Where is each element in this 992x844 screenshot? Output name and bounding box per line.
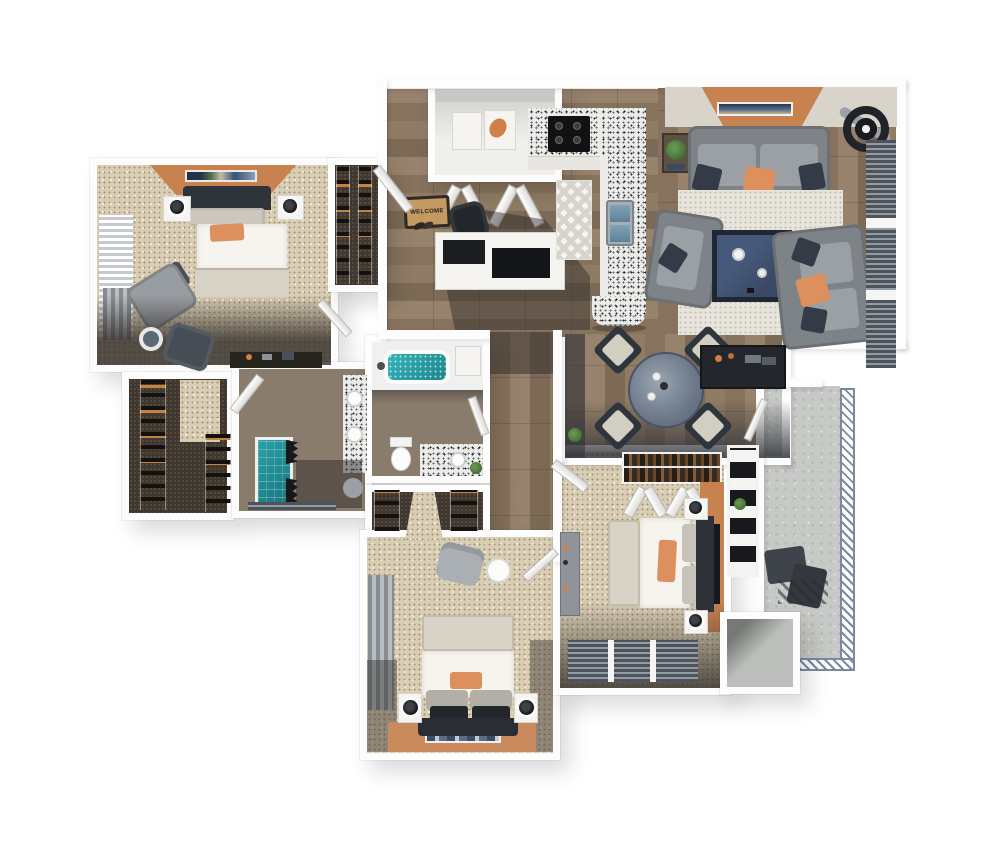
office-desk-surface-left xyxy=(443,240,485,264)
dining-table-cup-2 xyxy=(647,392,656,401)
living-window-divider-2 xyxy=(866,290,896,300)
dining-plant xyxy=(568,428,582,442)
console-item-books-2 xyxy=(762,357,776,365)
stove-burner-3 xyxy=(555,136,563,144)
bedroom1-desk-item-gray xyxy=(262,354,272,360)
sofa-top-pillow-dark-2 xyxy=(798,162,826,192)
bedroom3-lamp-right xyxy=(519,700,534,715)
sofa-right-pillow-dark-2 xyxy=(800,306,828,334)
laundry-back-wall xyxy=(436,90,554,102)
bedroom1-lamp-left xyxy=(170,200,184,214)
dining-table-centerpiece xyxy=(660,382,668,390)
bedroom2-dresser xyxy=(560,532,580,616)
bathroom1-window xyxy=(248,502,336,510)
living-window-divider-1 xyxy=(866,218,896,228)
bedroom2-dresser-decor-3 xyxy=(563,586,568,591)
console-item-books-1 xyxy=(745,355,761,363)
bedroom1-wall-art xyxy=(185,170,257,182)
bedroom2-headboard xyxy=(696,516,714,612)
bedroom2-lamp-bottom xyxy=(689,614,702,627)
linen-shelves-right xyxy=(450,490,478,540)
living-side-table-book xyxy=(667,164,685,170)
chair-cushion xyxy=(601,333,635,367)
living-window-blinds xyxy=(866,140,896,368)
bathroom1-sink-1 xyxy=(346,390,363,407)
bedroom1-desk-item-orange xyxy=(246,354,252,360)
bedroom1-lamp-right xyxy=(283,199,297,213)
bathtub xyxy=(384,350,450,384)
living-wall-art xyxy=(717,102,793,116)
bedroom2-hanging-clothes xyxy=(624,454,720,482)
washer xyxy=(452,112,482,150)
bedroom3-foot-bench xyxy=(422,615,514,651)
chair-cushion xyxy=(691,409,725,443)
bathroom1-sink-2 xyxy=(346,426,363,443)
toilet-tank xyxy=(390,437,412,447)
coffee-table-plate-1 xyxy=(732,248,745,261)
wall-hall-right xyxy=(553,330,562,562)
bedroom2-dresser-decor-2 xyxy=(563,560,568,565)
stove-burner-2 xyxy=(573,122,581,130)
toilet-bowl xyxy=(391,447,411,471)
welcome-mat-text: WELCOME xyxy=(410,208,444,216)
console-item-orange-2 xyxy=(728,353,734,359)
kitchen-cabinet-face xyxy=(528,156,606,170)
balcony-railing-right xyxy=(840,388,855,670)
welcome-mat: WELCOME xyxy=(403,195,451,229)
walkin-shelves-left xyxy=(140,380,166,510)
bedroom2-window-divider-1 xyxy=(608,640,614,682)
kitchen-sink-basin-2 xyxy=(610,225,630,242)
bathroom2-sink xyxy=(450,452,466,468)
kitchen-runner-rug xyxy=(556,180,592,260)
bedroom3-lamp-left xyxy=(403,700,418,715)
bedroom2-dresser-decor-1 xyxy=(563,545,569,551)
floor-plan: WELCOME xyxy=(0,0,992,844)
bedroom1-desk-item-dark xyxy=(282,352,294,360)
wall-foyer-left xyxy=(378,78,387,344)
bathroom2-plant xyxy=(470,462,482,474)
coat-closet-shelves-right xyxy=(358,166,372,284)
bedroom1-round-table xyxy=(139,327,163,351)
wall-right-living xyxy=(896,78,906,348)
console-desk xyxy=(700,345,786,389)
shelf-niche-plant xyxy=(734,498,746,510)
bedroom1-foot-bench xyxy=(195,268,289,298)
bedroom2-lamp-top xyxy=(689,501,702,514)
dining-table-cup-1 xyxy=(652,372,661,381)
bedroom2-closet-rod xyxy=(622,452,722,484)
bedroom2-window-blinds xyxy=(568,640,698,682)
bedroom3-round-table xyxy=(486,558,511,583)
bedroom2-window-divider-2 xyxy=(650,640,656,682)
closet-rod-bar xyxy=(624,466,720,468)
stove-burner-1 xyxy=(555,122,563,130)
wall-foyer-bottom xyxy=(378,330,490,339)
bedroom1-desk xyxy=(230,352,322,368)
bedroom3-headboard xyxy=(418,718,518,736)
living-plant xyxy=(666,140,686,160)
kitchen-peninsula xyxy=(592,296,646,326)
bedroom3-curtains xyxy=(368,575,394,710)
coat-closet-shelves-left xyxy=(336,166,350,284)
coffee-table-remote xyxy=(747,288,754,293)
stove xyxy=(548,116,590,152)
coffee-table-plate-2 xyxy=(757,268,767,278)
hallway-floor xyxy=(490,332,553,562)
bedroom2-orange-pillow xyxy=(657,540,677,583)
office-desk-surface-center xyxy=(492,248,550,278)
shelf-niche xyxy=(727,445,759,577)
storage-room xyxy=(720,612,800,694)
bedroom2-tv xyxy=(714,524,720,604)
kitchen-sink-basin-1 xyxy=(610,205,630,222)
bathtub-faucet xyxy=(377,362,385,370)
bathroom1-stool xyxy=(343,478,363,498)
bedroom2-foot-bench xyxy=(608,520,640,606)
console-item-orange-1 xyxy=(715,355,722,362)
bedroom3-orange-pillow xyxy=(450,672,482,689)
chair-cushion xyxy=(601,409,635,443)
walkin-shelves-right xyxy=(205,430,231,512)
bathroom2-cabinet xyxy=(455,346,481,376)
stove-burner-4 xyxy=(573,136,581,144)
dining-table xyxy=(628,352,704,428)
bedroom1-orange-pillow xyxy=(210,223,245,242)
bedroom1-headboard xyxy=(183,186,271,210)
linen-shelves-left xyxy=(374,490,400,540)
